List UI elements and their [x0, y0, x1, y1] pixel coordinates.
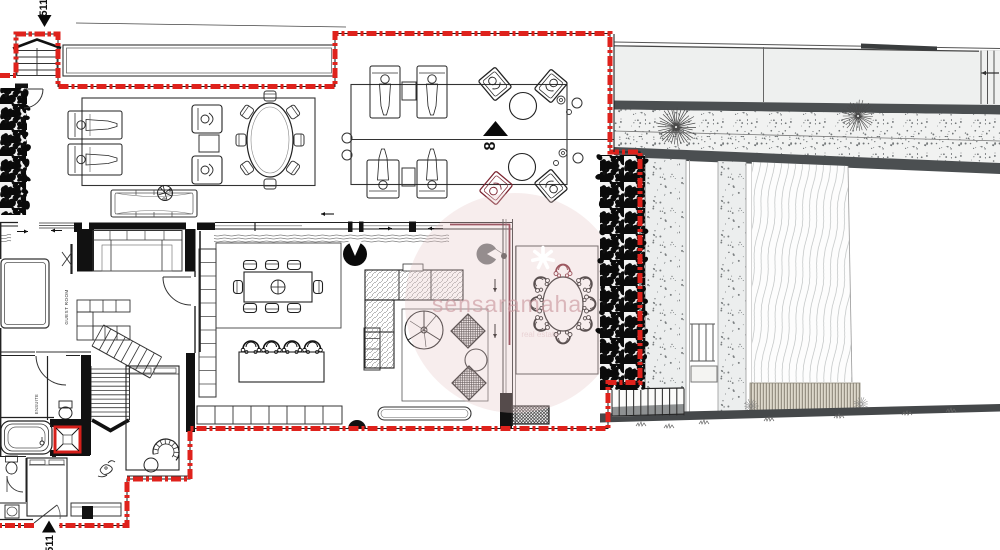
svg-text:real estate: real estate: [521, 330, 559, 339]
svg-text:511: 511: [38, 0, 50, 17]
svg-text:ENSUITE: ENSUITE: [34, 394, 39, 414]
svg-text:8: 8: [482, 141, 499, 150]
svg-text:511: 511: [44, 535, 56, 550]
svg-text:sensaramaha: sensaramaha: [432, 291, 582, 317]
svg-text:GUEST ROOM: GUEST ROOM: [64, 289, 69, 324]
